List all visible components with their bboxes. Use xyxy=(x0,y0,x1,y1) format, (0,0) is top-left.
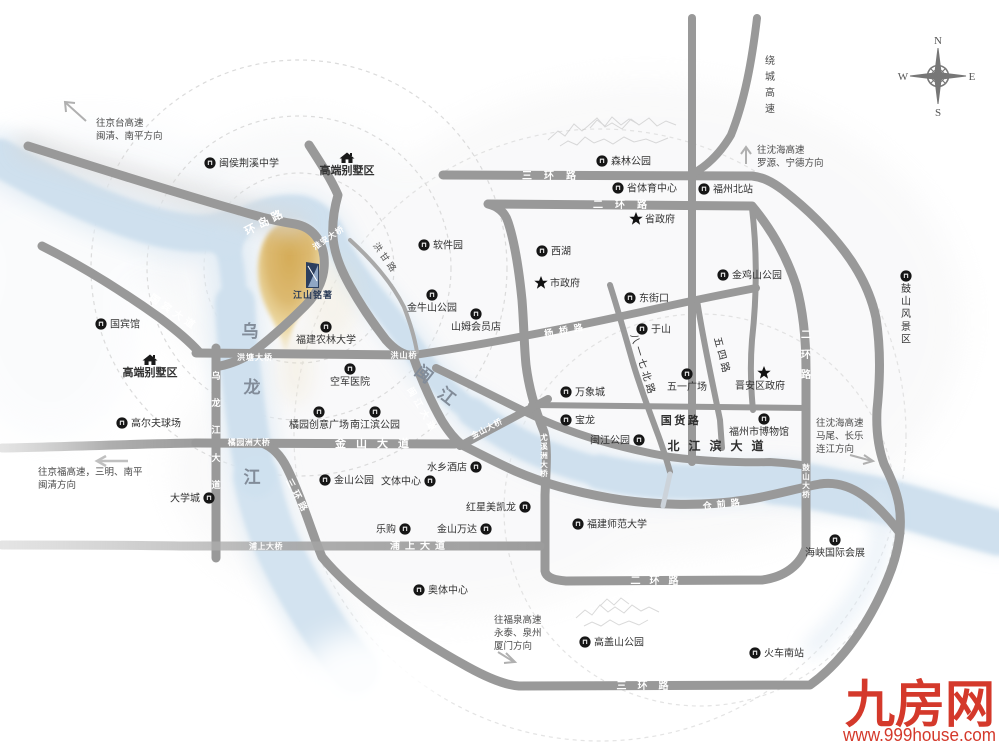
svg-text:罗源、宁德方向: 罗源、宁德方向 xyxy=(757,157,824,169)
svg-text:市政府: 市政府 xyxy=(550,277,580,290)
svg-text:红星美凯龙: 红星美凯龙 xyxy=(466,501,516,514)
svg-text:环: 环 xyxy=(801,349,811,361)
svg-text:西湖: 西湖 xyxy=(551,246,571,258)
svg-text:往京台高速: 往京台高速 xyxy=(96,117,144,129)
svg-text:软件园: 软件园 xyxy=(433,239,463,252)
svg-text:福建师范大学: 福建师范大学 xyxy=(587,518,647,531)
svg-text:闽江公园: 闽江公园 xyxy=(590,434,630,447)
svg-text:大: 大 xyxy=(802,480,810,490)
svg-text:文体中心: 文体中心 xyxy=(381,475,421,488)
svg-text:水乡酒店: 水乡酒店 xyxy=(427,461,467,474)
svg-text:金山万达: 金山万达 xyxy=(437,523,477,536)
svg-text:宝龙: 宝龙 xyxy=(575,414,595,427)
svg-text:洪塘大桥: 洪塘大桥 xyxy=(237,352,273,362)
svg-text:浦上大桥: 浦上大桥 xyxy=(249,541,283,551)
svg-text:高端别墅区: 高端别墅区 xyxy=(320,163,375,177)
svg-text:W: W xyxy=(898,71,909,83)
svg-text:风: 风 xyxy=(901,308,911,320)
svg-text:乌: 乌 xyxy=(211,370,220,381)
svg-text:橘园洲大桥: 橘园洲大桥 xyxy=(227,437,271,447)
svg-text:金鸡山公园: 金鸡山公园 xyxy=(732,269,782,282)
svg-text:N: N xyxy=(934,35,942,47)
svg-text:二环路: 二环路 xyxy=(631,574,688,587)
svg-text:国宾馆: 国宾馆 xyxy=(110,318,140,331)
svg-text:北江滨大道: 北江滨大道 xyxy=(667,438,772,453)
svg-text:空军医院: 空军医院 xyxy=(330,375,370,388)
svg-text:城: 城 xyxy=(765,71,775,83)
svg-text:江: 江 xyxy=(211,424,220,435)
svg-text:万象城: 万象城 xyxy=(575,387,605,399)
svg-text:S: S xyxy=(935,107,941,119)
svg-text:大学城: 大学城 xyxy=(170,492,200,505)
svg-text:洲: 洲 xyxy=(540,451,548,460)
svg-text:江山铭著: 江山铭著 xyxy=(293,289,333,300)
svg-text:路: 路 xyxy=(801,368,812,381)
svg-text:E: E xyxy=(969,71,976,83)
svg-text:溪: 溪 xyxy=(540,441,548,451)
svg-text:山: 山 xyxy=(802,471,810,481)
svg-text:金牛山公园: 金牛山公园 xyxy=(407,301,457,314)
svg-text:金山公园: 金山公园 xyxy=(334,474,374,487)
svg-text:浦上大道: 浦上大道 xyxy=(390,539,450,552)
svg-text:三环路: 三环路 xyxy=(522,169,588,182)
svg-text:东街口: 东街口 xyxy=(639,292,669,305)
svg-text:省体育中心: 省体育中心 xyxy=(627,182,677,195)
svg-text:南江滨公园: 南江滨公园 xyxy=(350,418,400,431)
svg-text:鼓: 鼓 xyxy=(802,462,810,472)
svg-text:高端别墅区: 高端别墅区 xyxy=(123,365,178,379)
svg-text:往沈海高速: 往沈海高速 xyxy=(757,144,805,156)
svg-text:福州市博物馆: 福州市博物馆 xyxy=(729,425,789,438)
svg-text:高尔夫球场: 高尔夫球场 xyxy=(131,417,181,430)
svg-text:厦门方向: 厦门方向 xyxy=(494,640,532,652)
svg-text:道: 道 xyxy=(211,479,220,490)
svg-text:福建农林大学: 福建农林大学 xyxy=(296,333,356,346)
svg-text:于山: 于山 xyxy=(651,324,671,336)
svg-text:乌: 乌 xyxy=(242,321,259,341)
svg-text:金山大道: 金山大道 xyxy=(334,436,419,450)
svg-text:高盖山公园: 高盖山公园 xyxy=(594,636,644,649)
svg-text:往福泉高速: 往福泉高速 xyxy=(494,614,542,626)
svg-text:永泰、泉州: 永泰、泉州 xyxy=(494,627,542,639)
svg-text:景: 景 xyxy=(901,321,911,333)
svg-text:森林公园: 森林公园 xyxy=(611,155,651,168)
svg-text:速: 速 xyxy=(765,103,775,115)
svg-text:省政府: 省政府 xyxy=(645,213,675,226)
svg-text:往京福高速，三明、南平: 往京福高速，三明、南平 xyxy=(38,466,143,478)
svg-text:往沈海高速: 往沈海高速 xyxy=(816,417,864,429)
svg-text:高: 高 xyxy=(765,86,775,99)
svg-text:龙: 龙 xyxy=(243,377,261,397)
svg-text:龙: 龙 xyxy=(210,397,220,408)
svg-text:洪山桥: 洪山桥 xyxy=(391,350,418,360)
svg-text:福州北站: 福州北站 xyxy=(713,183,753,196)
svg-text:乐购: 乐购 xyxy=(376,523,396,536)
svg-text:桥: 桥 xyxy=(540,468,548,478)
svg-text:山: 山 xyxy=(901,296,911,308)
svg-text:马尾、长乐: 马尾、长乐 xyxy=(816,430,864,442)
svg-text:三环路: 三环路 xyxy=(617,679,680,692)
svg-text:大: 大 xyxy=(211,452,220,463)
svg-text:闽侯荆溪中学: 闽侯荆溪中学 xyxy=(219,157,279,170)
svg-text:二: 二 xyxy=(801,329,811,341)
svg-text:江: 江 xyxy=(244,468,261,487)
svg-text:www.999house.com: www.999house.com xyxy=(842,725,996,745)
svg-text:区: 区 xyxy=(901,333,911,345)
svg-text:奥体中心: 奥体中心 xyxy=(428,584,468,597)
svg-text:闽清方向: 闽清方向 xyxy=(38,479,76,491)
svg-text:国货路: 国货路 xyxy=(661,413,702,427)
svg-text:海峡国际会展: 海峡国际会展 xyxy=(805,546,865,559)
svg-text:绕: 绕 xyxy=(765,54,775,67)
svg-text:鼓: 鼓 xyxy=(901,282,911,295)
svg-text:二环路: 二环路 xyxy=(593,198,659,211)
svg-text:连江方向: 连江方向 xyxy=(816,443,854,455)
svg-text:橘园创意广场: 橘园创意广场 xyxy=(289,418,349,431)
svg-text:晋安区政府: 晋安区政府 xyxy=(735,379,785,392)
svg-text:闽清、南平方向: 闽清、南平方向 xyxy=(96,130,163,142)
svg-text:山姆会员店: 山姆会员店 xyxy=(451,320,501,333)
svg-text:尤: 尤 xyxy=(540,432,548,442)
svg-text:桥: 桥 xyxy=(802,489,810,499)
svg-text:五一广场: 五一广场 xyxy=(667,380,707,393)
svg-text:火车南站: 火车南站 xyxy=(764,647,804,660)
svg-text:大: 大 xyxy=(540,459,548,469)
